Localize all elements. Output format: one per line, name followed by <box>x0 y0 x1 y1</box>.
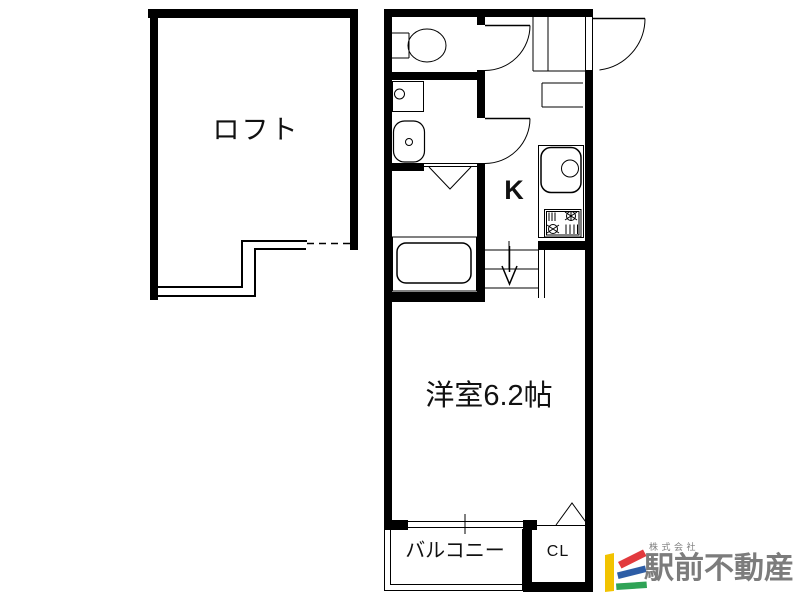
logo-bar-yellow <box>605 553 614 592</box>
folding-door-icon <box>424 164 477 190</box>
wall-segment <box>538 241 593 250</box>
loft-step-line <box>158 241 307 287</box>
wall-segment <box>150 9 158 300</box>
genkan-step-lines <box>533 17 593 107</box>
toilet-door-icon <box>485 26 530 71</box>
stove-icon <box>545 210 582 238</box>
door-arc <box>485 26 530 71</box>
wall-segment <box>148 9 358 18</box>
western-room-label: 洋室6.2帖 <box>384 382 594 411</box>
loft-label: ロフト <box>198 117 314 144</box>
basin-drain <box>406 139 413 146</box>
basin-body <box>394 121 425 162</box>
company-name-label: 駅前不動産 <box>644 550 794 588</box>
wall-segment <box>585 70 593 592</box>
stove-grill <box>549 213 555 222</box>
window-lines <box>408 514 523 534</box>
closet-label: CL <box>536 544 580 560</box>
wall-segment <box>384 292 485 302</box>
loft-walls <box>148 9 358 300</box>
sink-basin <box>541 148 581 193</box>
door-arc <box>485 119 530 164</box>
closet-fold-triangle <box>556 503 588 525</box>
stairs-icon <box>481 241 545 298</box>
drain-circle <box>395 89 405 99</box>
toilet-bowl <box>408 29 446 62</box>
company-logo-mark <box>605 550 647 593</box>
bathtub-icon <box>393 237 477 291</box>
down-arrow-icon <box>502 246 517 284</box>
kitchen-sink-icon <box>541 148 581 193</box>
washer-pan <box>393 82 424 112</box>
floorplan-page: ロフト K 洋室6.2帖 バルコニー CL 株式会社 駅前不動産 <box>0 0 800 600</box>
main-walls <box>384 9 593 592</box>
entry-door-icon <box>593 19 645 71</box>
closet-door-icon <box>532 503 593 526</box>
logo-bar-green <box>616 582 647 591</box>
wall-segment <box>477 163 485 302</box>
balcony-label: バルコニー <box>393 541 517 561</box>
wall-segment <box>384 9 392 530</box>
step-line <box>542 83 583 107</box>
wall-segment <box>384 163 424 171</box>
tub-inner <box>397 243 471 283</box>
loft-edge-lines <box>158 241 352 296</box>
washer-pan-icon <box>393 82 424 112</box>
wall-segment <box>384 520 408 530</box>
wall-segment <box>477 17 485 25</box>
faucet-circle <box>562 160 579 177</box>
step-line <box>533 17 585 71</box>
washbasin-icon <box>394 121 425 162</box>
door-track <box>424 164 477 167</box>
wall-segment <box>392 72 477 80</box>
wall-segment <box>384 9 593 17</box>
wall-segment <box>350 9 358 250</box>
loft-step-line <box>158 249 306 296</box>
kitchen-label: K <box>494 177 534 204</box>
wall-segment <box>477 70 485 118</box>
washroom-door-icon <box>485 119 530 164</box>
door-arc <box>600 19 646 71</box>
wall-segment <box>523 582 593 592</box>
stove-grill <box>566 225 578 235</box>
toilet-icon <box>392 29 446 62</box>
fold-v <box>429 167 471 189</box>
logo-bar-red <box>618 550 647 569</box>
floorplan-drawing <box>0 0 800 600</box>
toilet-tank <box>392 33 409 58</box>
door-jamb-line <box>586 17 593 70</box>
